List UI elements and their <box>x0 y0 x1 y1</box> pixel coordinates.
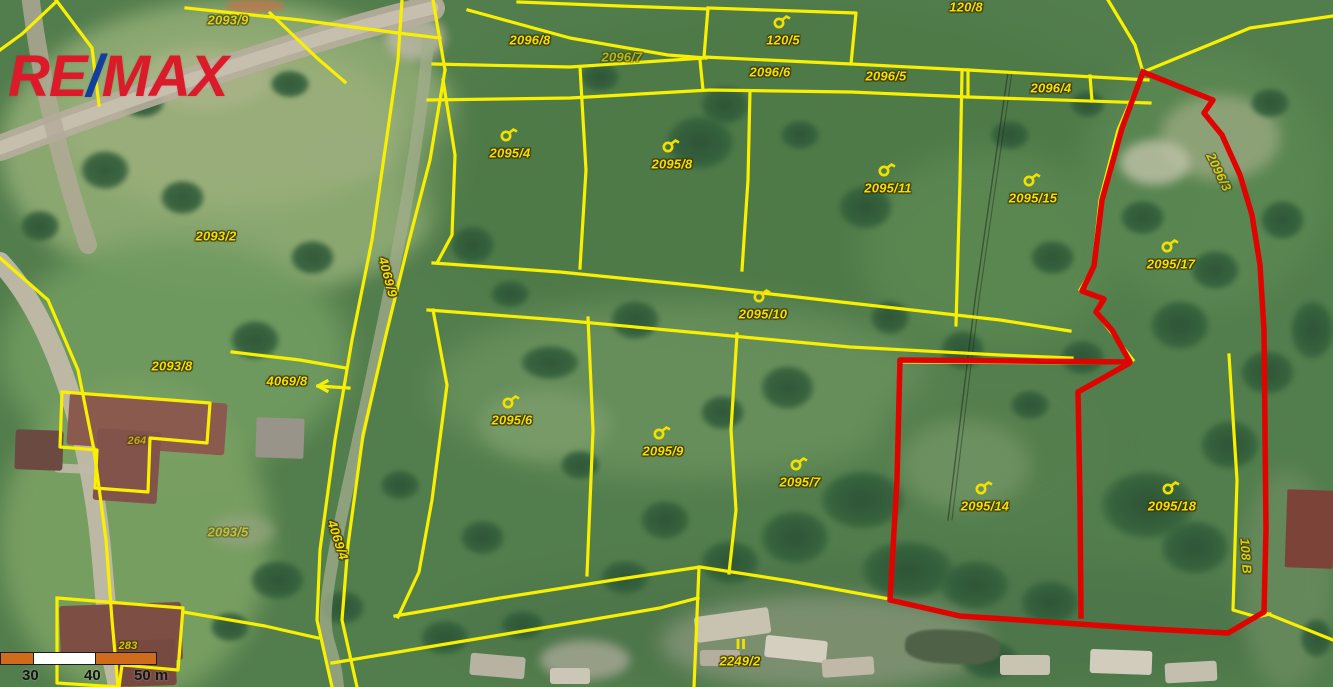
remax-logo: RE/MAX <box>8 48 228 106</box>
scale-segment <box>34 653 96 664</box>
parcel-label: 2096/7 <box>602 50 643 65</box>
parcel-label: 4069/4 <box>325 518 352 562</box>
parcel-label: 2095/18 <box>1148 499 1196 514</box>
parcel-label: 2093/2 <box>196 229 237 244</box>
land-use-icon <box>652 423 674 440</box>
parcel-label: 4069/8 <box>267 374 308 389</box>
land-use-icon <box>1161 478 1183 495</box>
parcel-label: 2096/3 <box>1203 150 1234 193</box>
land-use-icon <box>772 12 794 29</box>
parcel-label: 4069/9 <box>375 255 400 298</box>
land-use-icon <box>877 160 899 177</box>
logo-max: MAX <box>102 48 228 106</box>
parcel-label: 2093/8 <box>152 359 193 374</box>
land-use-icon <box>789 454 811 471</box>
parcel-label: 2095/8 <box>652 157 693 172</box>
parcel-label: 2095/10 <box>739 307 787 322</box>
scale-bar: 30 40 50 m <box>0 650 180 687</box>
parcel-label: 2249/2 <box>720 654 761 669</box>
scale-tick: 30 <box>22 667 39 684</box>
scale-tick: 50 m <box>134 667 168 684</box>
parcel-label: 2093/5 <box>208 525 249 540</box>
land-use-icon <box>733 637 755 654</box>
parcel-label: 2095/9 <box>643 444 684 459</box>
logo-re: RE <box>8 48 87 106</box>
land-use-icon <box>661 136 683 153</box>
parcel-label: 2095/17 <box>1147 257 1195 272</box>
parcel-label: 2095/15 <box>1009 191 1057 206</box>
scale-bar-track <box>0 652 157 665</box>
land-use-icon <box>499 125 521 142</box>
scale-tick: 40 <box>84 667 101 684</box>
land-use-icon <box>974 478 996 495</box>
scale-segment <box>96 653 156 664</box>
parcel-label: 2095/4 <box>490 146 531 161</box>
aerial-cadastral-map: 2093/92096/82096/7120/5120/82096/62096/5… <box>0 0 1333 687</box>
land-use-icon <box>1160 236 1182 253</box>
parcel-label: 2096/6 <box>750 65 791 80</box>
parcel-label: 108 B <box>1237 538 1254 575</box>
land-use-icon <box>501 392 523 409</box>
logo-slash: / <box>87 48 102 106</box>
parcel-label: 2096/8 <box>510 33 551 48</box>
scale-segment <box>1 653 34 664</box>
land-use-icon <box>752 286 774 303</box>
parcel-label: 2096/4 <box>1031 81 1072 96</box>
parcel-label: 120/8 <box>949 0 983 15</box>
parcel-label: 2095/11 <box>864 181 911 196</box>
parcel-label: 2095/7 <box>780 475 821 490</box>
parcel-label: 2095/14 <box>961 499 1009 514</box>
parcel-label: 2095/6 <box>492 413 533 428</box>
parcel-label: 2093/9 <box>208 13 249 28</box>
parcel-label: 120/5 <box>766 33 800 48</box>
parcel-label: 264 <box>128 435 147 447</box>
land-use-icon <box>1022 170 1044 187</box>
parcel-label: 2096/5 <box>866 69 907 84</box>
